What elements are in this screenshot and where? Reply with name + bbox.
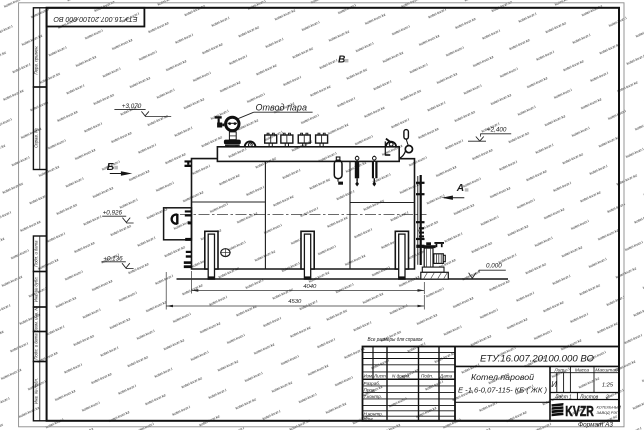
svg-text:Справ. №: Справ. № xyxy=(33,128,38,148)
svg-text:Инв. № подл.: Инв. № подл. xyxy=(33,378,38,404)
svg-text:Взам. инв. №: Взам. инв. № xyxy=(33,306,38,332)
svg-text:А: А xyxy=(456,183,464,194)
svg-text:1:25: 1:25 xyxy=(602,383,614,389)
svg-text:Лист: Лист xyxy=(554,394,568,400)
svg-text:Утв.: Утв. xyxy=(364,416,374,421)
svg-text:И: И xyxy=(551,380,557,389)
svg-text:+2,400: +2,400 xyxy=(487,126,507,133)
svg-text:1: 1 xyxy=(569,394,572,400)
svg-text:ЕТУ.16.007.20100.000 ВО: ЕТУ.16.007.20100.000 ВО xyxy=(53,15,137,24)
svg-text:N докум.: N докум. xyxy=(392,374,411,379)
svg-text:Масса: Масса xyxy=(575,367,590,373)
svg-text:Лит.: Лит. xyxy=(553,367,565,373)
svg-text:Подп.: Подп. xyxy=(421,374,433,379)
svg-text:Подп. и дата: Подп. и дата xyxy=(33,240,38,267)
svg-text:В: В xyxy=(338,54,345,65)
svg-text:Листов: Листов xyxy=(579,394,599,400)
svg-text:Дата: Дата xyxy=(439,374,453,379)
svg-text:Т.контр.: Т.контр. xyxy=(364,394,383,399)
svg-text:Формат А3: Формат А3 xyxy=(578,422,613,429)
svg-text:+3,070: +3,070 xyxy=(122,103,142,110)
svg-text:Лист: Лист xyxy=(373,374,386,379)
svg-text:Котел паровой: Котел паровой xyxy=(471,373,534,382)
svg-text:4040: 4040 xyxy=(303,284,317,290)
svg-text:Инв. № дубл.: Инв. № дубл. xyxy=(33,276,38,302)
svg-text:4530: 4530 xyxy=(288,299,302,305)
svg-text:Отвод пара: Отвод пара xyxy=(256,103,307,113)
svg-text:2: 2 xyxy=(605,394,609,400)
svg-text:Разраб.: Разраб. xyxy=(364,381,381,386)
svg-text:Масштаб: Масштаб xyxy=(595,367,618,373)
svg-text:KVZR: KVZR xyxy=(565,404,594,420)
svg-text:Подп. и дата: Подп. и дата xyxy=(33,333,38,360)
svg-text:Изм.: Изм. xyxy=(364,374,374,379)
svg-text:0,000: 0,000 xyxy=(486,263,502,270)
svg-text:Пров.: Пров. xyxy=(364,387,376,392)
svg-text:Б: Б xyxy=(107,162,114,173)
svg-text:+0,926: +0,926 xyxy=(103,210,123,217)
svg-text:ЕТУ.16.007.20100.000 ВО: ЕТУ.16.007.20100.000 ВО xyxy=(480,353,594,363)
svg-text:Все размеры для справок: Все размеры для справок xyxy=(368,337,423,343)
svg-text:Е -1,6-0,07-115- КБ ( ЖК ): Е -1,6-0,07-115- КБ ( ЖК ) xyxy=(458,386,547,395)
svg-text:ЗАВОД РЭП: ЗАВОД РЭП xyxy=(597,410,620,415)
svg-text:Перв. примен.: Перв. примен. xyxy=(33,45,38,74)
